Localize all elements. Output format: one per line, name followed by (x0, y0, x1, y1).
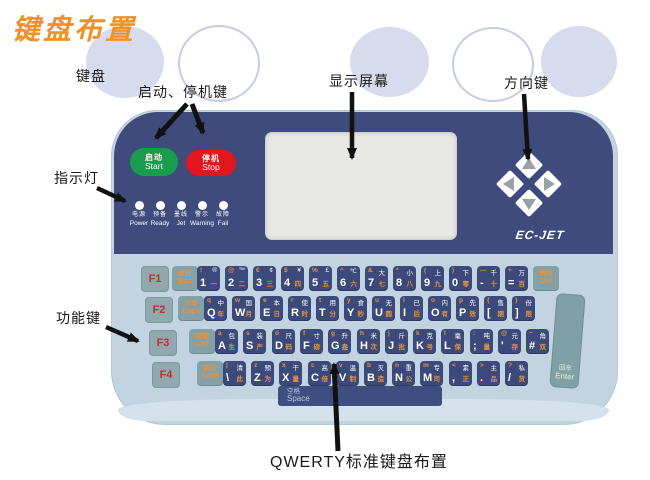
key-glyph: ! (200, 267, 202, 274)
enter-label-en: Enter (551, 371, 579, 383)
key-#[interactable]: ~角#双 (526, 329, 549, 353)
key-glyph: 期 (498, 308, 505, 318)
key-glyph: 三 (267, 278, 274, 288)
key-glyph: 毫 (455, 330, 462, 340)
key-glyph: 无 (386, 297, 393, 307)
key-glyph: 内 (442, 297, 449, 307)
key-glyph: 用 (330, 297, 337, 307)
key--[interactable]: —千-十 (477, 266, 500, 290)
key-glyph: ) (452, 267, 454, 274)
key-glyph: 磅 (314, 341, 321, 351)
page-title: 键盘布置 (12, 8, 136, 48)
key-glyph: 圆 (386, 308, 393, 318)
key-glyph: 下 (463, 267, 470, 277)
key-glyph: 寸 (314, 330, 321, 340)
space-label-zh: 空格 (287, 388, 442, 395)
key-glyph: % (312, 267, 318, 274)
key-glyph: k (416, 330, 420, 337)
key-glyph: \ (226, 372, 229, 384)
key-glyph: 小 (407, 267, 414, 277)
label-qwerty-layout: QWERTY标准键盘布置 (270, 448, 448, 472)
key-glyph: > (480, 362, 484, 369)
key-7[interactable]: &大7七 (365, 266, 388, 290)
key-glyph: L (444, 340, 451, 352)
led-fail (219, 201, 228, 210)
key-glyph: d (275, 330, 279, 337)
direction-keypad (487, 142, 571, 226)
label-start-stop-keys: 启动、停机键 (138, 82, 228, 102)
key-glyph: 有 (442, 308, 449, 318)
key-glyph: 制 (350, 373, 357, 383)
key-glyph: 角 (540, 330, 547, 340)
key-glyph: 尺 (286, 330, 293, 340)
key-glyph: { (487, 297, 490, 304)
key-glyph: ; (473, 340, 477, 352)
key-glyph: 主 (491, 362, 498, 372)
key-glyph: 万 (519, 267, 526, 277)
key-glyph: 清 (237, 362, 244, 372)
key-glyph: T (319, 307, 326, 319)
key-glyph: 百 (519, 278, 526, 288)
key-glyph: g (331, 330, 335, 337)
key-glyph: u (375, 297, 379, 304)
key-M[interactable]: m专M司 (420, 361, 443, 385)
key-G[interactable]: g升G盎 (328, 329, 351, 353)
key-6[interactable]: ^℃6六 (337, 266, 360, 290)
start-button[interactable]: 启动 Start (130, 148, 178, 176)
key-glyph: r (291, 297, 294, 304)
key-V[interactable]: v温V制 (336, 361, 359, 385)
key-glyph: E (263, 307, 270, 319)
key-glyph: 次 (371, 341, 378, 351)
key-glyph: K (416, 340, 424, 352)
key-shift[interactable]: 移位Shift (197, 361, 223, 385)
key-glyph: 9 (424, 277, 430, 289)
key-glyph: / (508, 372, 511, 384)
key-space[interactable]: 空格 Space (278, 386, 442, 406)
stop-button-label-en: Stop (186, 163, 236, 173)
key-glyph: | (226, 362, 228, 369)
label-indicator-lights: 指示灯 (54, 168, 99, 188)
key-glyph: 素 (463, 362, 470, 372)
key-glyph: @ (228, 267, 234, 274)
key-P[interactable]: p先P效 (456, 296, 479, 320)
key-D[interactable]: d尺D码 (272, 329, 295, 353)
key-glyph: ? (508, 362, 512, 369)
key-f2[interactable]: F2 (145, 297, 173, 323)
key-glyph: 四 (295, 278, 302, 288)
key-glyph: 二 (239, 278, 246, 288)
key-glyph: 升 (342, 330, 349, 340)
key-0[interactable]: )下0零 (449, 266, 472, 290)
key-glyph: J (388, 340, 394, 352)
key-glyph: 量 (484, 341, 491, 351)
key-L[interactable]: l毫L保 (441, 329, 464, 353)
key-glyph: o (431, 297, 435, 304)
key-glyph: j (388, 330, 390, 337)
key-X[interactable]: x干X量 (279, 361, 302, 385)
key-glyph: 售 (498, 297, 505, 307)
key-glyph: ~ (529, 330, 533, 337)
key-glyph: 司 (434, 373, 441, 383)
key-glyph: ℃ (350, 267, 357, 275)
key-glyph: 年 (218, 308, 225, 318)
label-keyboard: 键盘 (76, 66, 106, 86)
key-glyph: n (395, 362, 399, 369)
key-glyph: 秒 (358, 308, 365, 318)
key-9[interactable]: (上9九 (421, 266, 444, 290)
key-glyph: 高 (322, 362, 329, 372)
key-glyph: < (452, 362, 456, 369)
key-W[interactable]: w国W月 (232, 296, 255, 320)
key-glyph: 存 (512, 341, 519, 351)
key-glyph: 正 (463, 373, 470, 383)
key-glyph: — (480, 267, 487, 274)
key-glyph: 灭 (378, 362, 385, 372)
start-button-label-en: Start (130, 162, 178, 172)
key-C[interactable]: c高C倍 (308, 361, 331, 385)
key-glyph: W (235, 307, 245, 319)
key-glyph: ] (515, 307, 519, 319)
key-glyph: @ (501, 330, 507, 337)
key-glyph: 3 (256, 277, 262, 289)
key-glyph: f (303, 330, 305, 337)
led-ready (156, 201, 165, 210)
key-[[interactable]: {售[期 (484, 296, 507, 320)
key-glyph: y (347, 297, 351, 304)
key-glyph: & (368, 267, 373, 274)
key-glyph: 为 (265, 373, 272, 383)
key-N[interactable]: n重N公 (392, 361, 415, 385)
key-glyph: 造 (378, 373, 385, 383)
key-E[interactable]: e本E日 (260, 296, 283, 320)
key-glyph: A (218, 340, 226, 352)
label-display-screen: 显示屏幕 (329, 71, 389, 91)
key-glyph: 4 (284, 277, 290, 289)
led-label-fail: 故障Fail (208, 212, 238, 228)
key-glyph: 食 (358, 297, 365, 307)
key-glyph: X (282, 372, 289, 384)
key-glyph: 零 (463, 278, 470, 288)
key-glyph: 使 (302, 297, 309, 307)
key-glyph: 已 (414, 297, 421, 307)
key-glyph: 国 (246, 297, 253, 307)
key-Y[interactable]: y食Y秒 (344, 296, 367, 320)
brand-logo: EC-JET (491, 228, 589, 242)
key-glyph: ¢ (269, 267, 273, 274)
key-glyph: 0 (452, 277, 458, 289)
key-glyph: 批 (399, 341, 406, 351)
key-2[interactable]: @™2二 (225, 266, 248, 290)
key-f1[interactable]: F1 (141, 266, 169, 292)
key-glyph: ® (212, 267, 217, 274)
key-I[interactable]: i已I后 (400, 296, 423, 320)
key-glyph: h (360, 330, 364, 337)
key-H[interactable]: h米H次 (357, 329, 380, 353)
key-glyph: 斤 (399, 330, 406, 340)
key-8[interactable]: *小8八 (393, 266, 416, 290)
key-glyph: 元 (512, 330, 519, 340)
key-glyph: : (473, 330, 475, 337)
key-glyph: p (459, 297, 463, 304)
key-.[interactable]: >主.品 (477, 361, 500, 385)
key-glyph: 此 (237, 373, 244, 383)
key-glyph: * (396, 267, 399, 274)
key-glyph: t (319, 297, 321, 304)
key-glyph: 7 (368, 277, 374, 289)
key-glyph: 预 (265, 362, 272, 372)
stop-button[interactable]: 停机 Stop (186, 150, 236, 176)
key-glyph: 产 (257, 341, 264, 351)
key-glyph: 大 (379, 267, 386, 277)
key-glyph: 倍 (322, 373, 329, 383)
label-direction-keys: 方向键 (504, 73, 549, 93)
key-glyph: O (431, 307, 440, 319)
led-warning (198, 201, 207, 210)
key-glyph: H (360, 340, 368, 352)
key-;[interactable]: :吨;量 (470, 329, 493, 353)
key-glyph: 五 (323, 278, 330, 288)
key-glyph: i (403, 297, 405, 304)
key-glyph: 保 (455, 341, 462, 351)
label-function-keys: 功能键 (56, 308, 101, 328)
key-glyph: 后 (414, 308, 421, 318)
key-glyph: 分 (330, 308, 337, 318)
led-power (135, 201, 144, 210)
key-glyph: 装 (257, 330, 264, 340)
key-S[interactable]: s装S产 (243, 329, 266, 353)
key-glyph: 六 (351, 278, 358, 288)
key-glyph: 8 (396, 277, 402, 289)
key-del[interactable]: 删除Del (533, 266, 559, 290)
key-glyph: R (291, 307, 299, 319)
key-glyph: ^ (340, 267, 344, 274)
key-glyph: 上 (435, 267, 442, 277)
key-'[interactable]: @元'存 (498, 329, 521, 353)
key-glyph: 1 (200, 277, 206, 289)
key-glyph: Z (254, 372, 261, 384)
key-T[interactable]: t用T分 (316, 296, 339, 320)
key-/[interactable]: ?私/货 (505, 361, 528, 385)
display-screen (265, 132, 457, 240)
key-A[interactable]: a包A生 (215, 329, 238, 353)
key-glyph: 十 (491, 278, 498, 288)
key-glyph: 份 (526, 297, 533, 307)
key-glyph: Q (207, 307, 216, 319)
key-glyph: 私 (519, 362, 526, 372)
key-glyph: D (275, 340, 283, 352)
key-glyph: 八 (407, 278, 414, 288)
key-glyph: b (367, 362, 371, 369)
key-glyph: 千 (491, 267, 498, 277)
direction-up-key[interactable] (515, 151, 543, 179)
key-F[interactable]: f寸F磅 (300, 329, 323, 353)
key-glyph: F (303, 340, 310, 352)
key-glyph: } (515, 297, 518, 304)
key-glyph: m (423, 362, 429, 369)
key-Z[interactable]: z预Z为 (251, 361, 274, 385)
key-4[interactable]: $¥4四 (281, 266, 304, 290)
key-K[interactable]: k克K号 (413, 329, 436, 353)
key-R[interactable]: r使R时 (288, 296, 311, 320)
key-glyph: v (339, 362, 343, 369)
space-label-en: Space (287, 395, 442, 404)
key-glyph: 温 (350, 362, 357, 372)
slide: 启动 Start 停机 Stop 电源Power预备Ready墨线Jet警示Wa… (0, 0, 650, 480)
key-glyph: e (263, 297, 267, 304)
key-5[interactable]: %£5五 (309, 266, 332, 290)
key-glyph: # (529, 340, 535, 352)
key-glyph: . (480, 372, 483, 384)
key-glyph: 干 (293, 362, 300, 372)
key-ctrl[interactable]: 控制Ctrl (189, 329, 215, 353)
direction-right-key[interactable] (534, 170, 562, 198)
key-glyph: P (459, 307, 466, 319)
key-glyph: 限 (526, 308, 533, 318)
key-O[interactable]: o内O有 (428, 296, 451, 320)
key-glyph: $ (284, 267, 288, 274)
key-glyph: V (339, 372, 346, 384)
key-glyph: ' (501, 340, 504, 352)
key-glyph: 月 (246, 308, 253, 318)
key-glyph: 码 (286, 341, 293, 351)
key-glyph: 克 (427, 330, 434, 340)
key-glyph: £ (325, 267, 329, 274)
key-f3[interactable]: F3 (149, 330, 177, 356)
key-glyph: B (367, 372, 375, 384)
key-glyph: 货 (519, 373, 526, 383)
key-glyph: [ (487, 307, 491, 319)
key-glyph: 2 (228, 277, 234, 289)
key-glyph: , (452, 372, 455, 384)
key-,[interactable]: <素,正 (449, 361, 472, 385)
key-glyph: 包 (229, 330, 236, 340)
key-glyph: 七 (379, 278, 386, 288)
key-caps[interactable]: 大写Caps (178, 296, 204, 320)
key-glyph: 九 (435, 278, 442, 288)
key-glyph: 量 (293, 373, 300, 383)
key-glyph: 先 (470, 297, 477, 307)
key-glyph: w (235, 297, 240, 304)
decor-circle (541, 26, 617, 97)
key-J[interactable]: j斤J批 (385, 329, 408, 353)
key-\[interactable]: |清\此 (223, 361, 246, 385)
key-glyph: 中 (218, 297, 225, 307)
key-glyph: - (480, 277, 484, 289)
key-glyph: 5 (312, 277, 318, 289)
key-glyph: G (331, 340, 340, 352)
key-=[interactable]: +万=百 (505, 266, 528, 290)
key-glyph: ( (424, 267, 426, 274)
key-glyph: I (403, 307, 406, 319)
key-glyph: = (508, 277, 514, 289)
key-glyph: C (311, 372, 319, 384)
key-glyph: 双 (540, 341, 547, 351)
key-glyph: 专 (434, 362, 441, 372)
key-glyph: 日 (274, 308, 281, 318)
key-glyph: 一 (211, 278, 218, 288)
key-glyph: M (423, 372, 432, 384)
key-glyph: z (254, 362, 257, 369)
key-glyph: 重 (406, 362, 413, 372)
key-glyph: l (444, 330, 446, 337)
key-glyph: 效 (470, 308, 477, 318)
key-glyph: 号 (427, 341, 434, 351)
direction-down-key[interactable] (515, 189, 543, 217)
key-glyph: c (311, 362, 315, 369)
key-glyph: ¥ (297, 267, 301, 274)
key-glyph: 6 (340, 277, 346, 289)
key-glyph: 公 (406, 373, 413, 383)
key-glyph: 吨 (484, 330, 491, 340)
key-glyph: x (282, 362, 286, 369)
key-glyph: + (508, 267, 512, 274)
key-glyph: Y (347, 307, 354, 319)
key-glyph: s (246, 330, 250, 337)
key-glyph: 本 (274, 297, 281, 307)
key-f4[interactable]: F4 (152, 362, 180, 388)
key-][interactable]: }份]限 (512, 296, 535, 320)
key-glyph: q (207, 297, 211, 304)
key-Q[interactable]: q中Q年 (204, 296, 227, 320)
key-glyph: 品 (491, 373, 498, 383)
direction-left-key[interactable] (496, 170, 524, 198)
key-B[interactable]: b灭B造 (364, 361, 387, 385)
key-esc[interactable]: 返回Esc (172, 266, 198, 290)
key-glyph: 时 (302, 308, 309, 318)
key-glyph: a (218, 330, 222, 337)
key-U[interactable]: u无U圆 (372, 296, 395, 320)
key-glyph: 米 (371, 330, 378, 340)
key-1[interactable]: !®1一 (197, 266, 220, 290)
key-glyph: 盎 (342, 341, 349, 351)
key-glyph: U (375, 307, 383, 319)
key-glyph: 生 (229, 341, 236, 351)
key-glyph: S (246, 340, 253, 352)
key-glyph: N (395, 372, 403, 384)
key-3[interactable]: €¢3三 (253, 266, 276, 290)
led-jet (177, 201, 186, 210)
key-glyph: € (256, 267, 260, 274)
key-glyph: ™ (239, 267, 246, 274)
